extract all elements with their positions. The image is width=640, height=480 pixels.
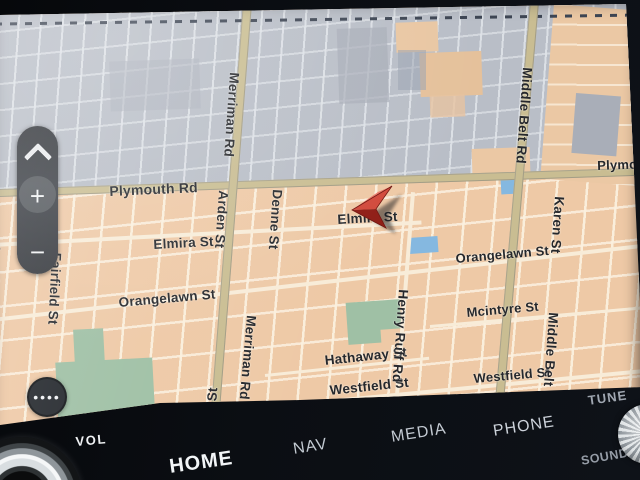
street-label-middle-belt: Middle Belt Rd [539,312,561,409]
park-area [73,328,105,366]
tune-knob-label: TUNE [587,388,628,408]
street-label-plymouth: Plymouth Rd [109,179,198,199]
plus-icon: + [30,181,45,211]
street-label-plymouth: Plymouth Rd [597,155,640,173]
more-options-button[interactable]: •••• [27,377,67,417]
street-label-partial: as St [203,387,220,421]
street-label-orangelawn: Orangelawn St [118,287,216,310]
zoom-out-button[interactable]: − [17,234,58,270]
zoom-in-button[interactable]: + [17,178,58,214]
pan-up-button[interactable] [17,134,58,170]
map-block [337,27,390,104]
map-zoom-control: + − [17,126,58,274]
current-position-marker [342,180,404,238]
nav-button[interactable]: NAV [292,436,329,459]
map-block [430,94,466,117]
phone-button[interactable]: PHONE [492,413,556,440]
park-area [55,358,155,431]
ellipsis-icon: •••• [33,389,61,405]
chevron-up-icon [23,143,51,171]
map-block [571,93,621,156]
map-block [419,51,482,97]
water-feature [408,236,438,254]
street-label-loveland: Loveland St [0,246,3,325]
map-block [109,58,201,111]
dashboard-bezel: Plymouth Rd Plymouth Rd Elmira St Elmira… [0,0,640,480]
map-block [398,50,426,90]
street-label-karen: Karen St [548,196,567,254]
nav-map-surface[interactable]: Plymouth Rd Plymouth Rd Elmira St Elmira… [0,0,640,480]
vol-knob-label: VOL [75,431,107,449]
road-westfield [260,368,640,410]
street-label-denne: Denne St [266,189,285,250]
home-button[interactable]: HOME [168,447,235,479]
street-label-merriman: Merriman Rd [237,315,259,401]
map-block [395,21,438,52]
media-button[interactable]: MEDIA [390,420,448,446]
volume-knob[interactable] [0,437,82,480]
street-label-elmira: Elmira St [153,234,214,252]
minus-icon: − [30,237,45,267]
